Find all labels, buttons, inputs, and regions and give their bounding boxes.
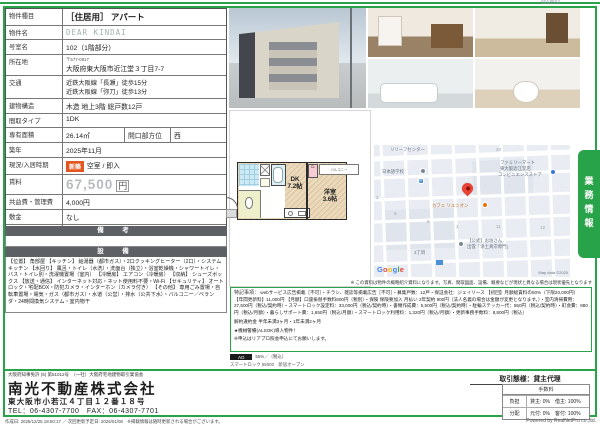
exterior-photo: [229, 8, 366, 108]
location-map: リリーフセンター 日本語学校 P ファミリーマート 東大阪近江堂店 コンビニエン…: [374, 145, 570, 277]
google-logo: Google: [377, 265, 404, 274]
door: [546, 13, 568, 43]
table-row: 共益費・管理費4,000円: [6, 194, 226, 209]
application-note: ※申込はリアプロ照会申込にてお願いします。: [234, 336, 588, 342]
parking-letter: P: [420, 178, 423, 183]
bathtub: [380, 83, 438, 103]
street-number: 11: [496, 224, 501, 229]
hallway-photo: [475, 8, 580, 57]
toilet-plan: [245, 197, 253, 209]
rent-unit: 円: [116, 180, 129, 192]
table-row: 交通近鉄大阪線「長瀬」徒歩15分近鉄大阪線「弥刀」徒歩13分: [6, 75, 226, 98]
dk-size: 7.2帖: [287, 183, 302, 190]
entrance-step: [226, 209, 237, 218]
special-notes-body: webサービス広告掲載［不可］・チラシ、雑誌等掲載広告［不可］・募集戸数：12戸…: [234, 290, 588, 315]
street-number: 5: [394, 211, 397, 216]
access-cell: 近鉄大阪線「長瀬」徒歩15分近鉄大阪線「弥刀」徒歩13分: [62, 76, 226, 98]
row-label: 敷金: [6, 210, 62, 224]
special-notes-box: 特記事項： webサービス広告掲載［不可］・チラシ、雑誌等掲載広告［不可］・募集…: [230, 287, 592, 352]
company-tel-fax: TEL：06-4307-7700 FAX：06-4307-7701: [8, 406, 159, 416]
room-size: 3.6帖: [323, 196, 338, 203]
row-value: ［住居用］ アパート: [62, 9, 226, 25]
equipment-text: 【位置】 角部屋 【キッチン】 給湯器（都市ガス）・2口クッキングヒーター（2口…: [5, 257, 227, 313]
room-name: 洋室: [324, 189, 336, 196]
table-row: 間取タイプ1DK: [6, 113, 226, 127]
dk-label: DK7.2帖: [282, 176, 308, 190]
address-cell: 〒577-0817大阪府東大阪市近江堂３丁目7-7: [62, 55, 226, 75]
map-label-temple-2: 出雲「浄土真宗専門」: [467, 244, 511, 250]
fee-row: 負担貸主: 0% 借主: 100%: [503, 395, 589, 407]
table-row: 建物構造木造 地上3階 総戸数12戸: [6, 98, 226, 113]
utility-pole: [350, 8, 352, 108]
dk-name: DK: [290, 176, 299, 183]
street-number: 1: [456, 224, 459, 229]
bath-tiles: [239, 164, 259, 186]
row-value: 4,000円: [62, 195, 226, 209]
row-label: 築年: [6, 143, 62, 157]
row-label: 開口部方位: [124, 128, 170, 142]
map-label-school: 日本語学校: [382, 169, 404, 175]
row-value: 西: [170, 128, 226, 142]
fee-table-title: 手数料: [503, 385, 589, 395]
ad-badge: AD: [230, 354, 252, 360]
rent-cell: 67,500円: [62, 175, 226, 194]
rent-amount: 67,500: [66, 177, 113, 192]
zip-code: 〒577-0817: [66, 57, 223, 63]
washstand: [260, 178, 270, 187]
access-line: 近鉄大阪線「弥刀」徒歩13分: [66, 87, 223, 96]
status-cell: 新築空室 / 即入: [62, 158, 226, 174]
bathroom-photo: [368, 59, 473, 108]
building-balconies: [269, 42, 317, 90]
cabinet: [431, 24, 463, 48]
school-icon: [420, 168, 426, 174]
access-line: 近鉄大阪線「長瀬」徒歩15分: [66, 78, 223, 87]
row-value: 26.14㎡: [62, 128, 124, 142]
row-label: 物件名: [6, 26, 62, 39]
row-value: なし: [62, 210, 226, 224]
row-label: 共益費・管理費: [6, 195, 62, 209]
map-copyright: Map data ©2025: [538, 270, 568, 275]
toilet-photo: [475, 59, 580, 108]
row-label: 号室名: [6, 40, 62, 54]
kitchen-photo: [368, 8, 473, 57]
sink-icon: [288, 211, 293, 216]
row-value: 2025年11月: [62, 143, 226, 157]
row-label: 専有面積: [6, 128, 62, 142]
ad-strip: AD55%／（税込） スマートロック 55000 新居オープン: [230, 354, 480, 368]
footer-powered-by: Powered by RealNetPro co.,ltd.: [526, 418, 596, 424]
row-label: 建物構造: [6, 99, 62, 113]
fee-table: 手数料 負担貸主: 0% 借主: 100% 分配元付: 0% 客付: 100%: [502, 384, 590, 420]
table-row: 賃料67,500円: [6, 174, 226, 194]
footer-separator: [4, 369, 596, 371]
familymart-icon: [550, 169, 556, 175]
fee-label: 分配: [503, 408, 527, 419]
address: 大阪府東大阪市近江堂３丁目7-7: [66, 66, 164, 73]
disclaimer-note: ※ この資料は物件の概略紹介資料になります。写真、間取図面、設備、概要などが現状…: [230, 280, 592, 286]
toilet: [513, 81, 539, 103]
table-row: 物件種目［住居用］ アパート: [6, 9, 226, 25]
temple-icon: [458, 241, 464, 247]
bus-stop-marker: [436, 260, 443, 265]
special-notes-label: 特記事項：: [234, 290, 259, 296]
map-label-district: 3丁目: [414, 250, 425, 256]
equipment-header: 設 備: [5, 247, 227, 257]
fee-value: 貸主: 0% 借主: 100%: [527, 396, 589, 407]
closet: CL: [308, 164, 318, 178]
footer-generated-date: 作成日: 2025/12/25 18:50:17 ／ 次回更新予定日: 2026…: [5, 419, 223, 425]
table-row: 敷金なし: [6, 209, 226, 224]
table-row: 所在地〒577-0817大阪府東大阪市近江堂３丁目7-7: [6, 54, 226, 75]
map-label-familymart-type: コンビニエンスストア: [498, 172, 542, 178]
alsok-note: ★機械警備(ALSOK)導入物件！: [234, 328, 588, 334]
remarks-body: [5, 236, 227, 247]
street-number: 24: [496, 147, 501, 152]
tab-gyomu-joho[interactable]: 業務情報: [578, 150, 600, 258]
balcony: バルコニー: [319, 164, 359, 175]
row-label: 現況/入居時期: [6, 158, 62, 174]
top-green-rule: [0, 2, 600, 4]
room-label: 洋室3.6帖: [313, 189, 347, 203]
map-label-relief-center: リリーフセンター: [390, 147, 425, 153]
table-row: 専有面積26.14㎡開口部方位西: [6, 127, 226, 142]
ad-value: 55%／（税込）: [255, 354, 286, 360]
fee-label: 負担: [503, 396, 527, 407]
photo-strip: [229, 8, 580, 108]
row-label: 所在地: [6, 55, 62, 75]
row-label: 間取タイプ: [6, 114, 62, 127]
door: [378, 16, 402, 46]
map-roads: [374, 145, 570, 277]
cancellation-penalty: 解約違約金 半年未満3ヶ月・1年未満2ヶ月: [234, 319, 588, 325]
washer-space: [260, 164, 270, 176]
table-row: 号室名102（1階部分）: [6, 39, 226, 54]
road: [374, 191, 570, 202]
stove-icon: [298, 211, 306, 216]
remarks-header: 備 考: [5, 226, 227, 236]
row-label: 交通: [6, 76, 62, 98]
street-number: 2: [376, 195, 379, 200]
table-row: 現況/入居時期新築空室 / 即入: [6, 157, 226, 174]
status-value: 空室 / 即入: [87, 163, 120, 170]
row-label: 賃料: [6, 175, 62, 194]
street-number: 6: [427, 219, 430, 224]
row-value: 木造 地上3階 総戸数12戸: [62, 99, 226, 113]
property-name: DEAR KINDAI: [62, 26, 226, 39]
row-value: 102（1階部分）: [62, 40, 226, 54]
new-badge: 新築: [66, 161, 84, 172]
tab-label: 業務情報: [583, 176, 596, 232]
ad-line2: スマートロック 55000 新居オープン: [230, 362, 480, 368]
cafe-icon: [482, 202, 488, 208]
row-label: 物件種目: [6, 9, 62, 25]
map-label-cafe: カフェ リユニオン: [432, 203, 468, 209]
street-number: 12: [540, 225, 545, 230]
table-row: 築年2025年11月: [6, 142, 226, 157]
table-row: 物件名DEAR KINDAI: [6, 25, 226, 39]
row-value: 1DK: [62, 114, 226, 127]
